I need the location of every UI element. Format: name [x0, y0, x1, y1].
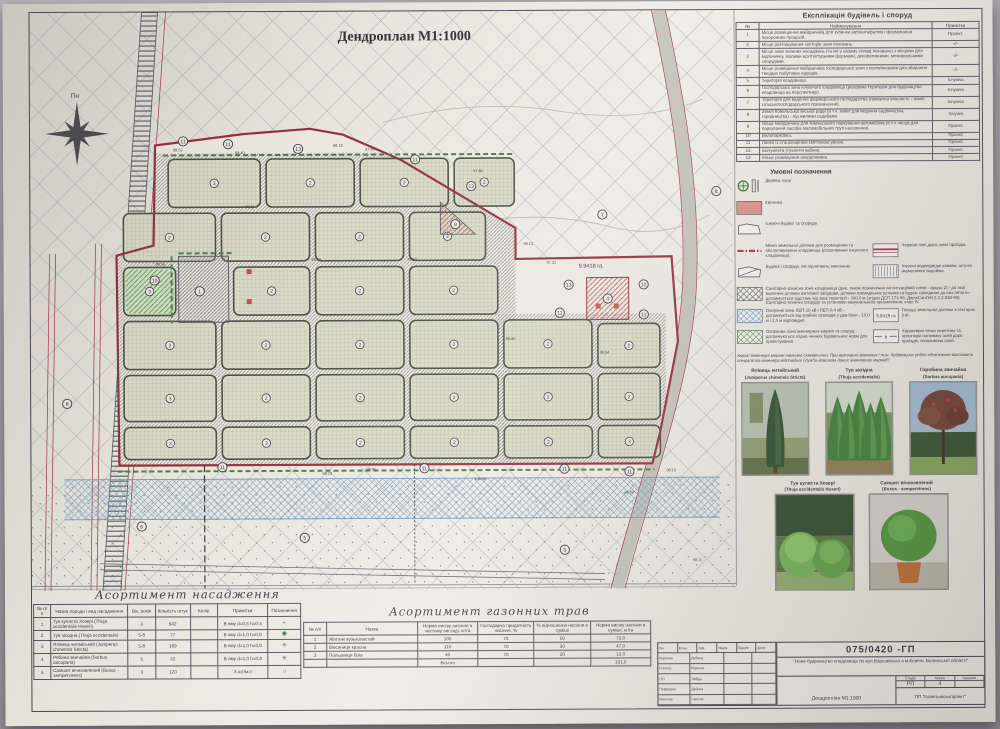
svg-text:2: 2 [264, 235, 267, 241]
cell-qty: 42 [155, 653, 190, 666]
svg-text:2: 2 [547, 395, 550, 401]
plant-latin-name: (Buxus - sempervirens) [869, 487, 945, 492]
legend-item: вХарактерні точки перетину та орієнтири … [873, 329, 981, 348]
stage-table: СтадіяРПАркуш4Аркушів [896, 676, 984, 688]
legend-row: Охоронна зона інженерних мереж та споруд… [737, 329, 981, 349]
legend-item-text: Квітники [765, 200, 782, 205]
plan-marker: 8 [712, 186, 721, 195]
szz-icon [737, 286, 763, 300]
plan-marker: 11 [639, 310, 648, 319]
burial-sector: 2 [266, 159, 354, 207]
rev-header-cell: №док. [717, 643, 737, 653]
cell-age: 3 [128, 617, 155, 630]
column-header: Колір [190, 604, 217, 617]
svg-text:97.31: 97.31 [547, 261, 557, 265]
plant-latin-name: (Thuja occidentalis Hoseri) [775, 487, 851, 492]
plant-card: Туя західна(Thuja occidentalis) [821, 369, 897, 476]
staff-name: Дубина [690, 653, 724, 663]
plant-card: Туя куляста Хозері(Thuja occidentalis Ho… [775, 481, 851, 591]
burial-sector: 2 [124, 321, 216, 369]
legend-item: Охоронна зона інженерних мереж та споруд… [737, 330, 873, 350]
burial-sector: 2 [316, 426, 404, 458]
empty [304, 659, 327, 667]
row-number: 1 [736, 30, 759, 42]
cell-ratio: 20 [534, 650, 590, 658]
staff-name: Дубина [690, 684, 724, 694]
svg-text:2: 2 [483, 180, 486, 186]
cell-color [190, 640, 217, 653]
column-header: % відношення насіння в суміші [534, 621, 590, 634]
rev-header-cell: Підпис [737, 643, 757, 653]
table-row: 3Місце зони зелених насаджень (та які у … [736, 48, 979, 66]
svg-text:2: 2 [169, 343, 172, 349]
svg-text:2: 2 [452, 288, 455, 294]
legend-row: Межа земельної ділянки для розміщення та… [736, 243, 980, 263]
burial-sector: 3 [124, 267, 176, 315]
title-block-staff: Зм.Кільк.Арк.№док.ПідписДатаКерівникДуби… [658, 643, 777, 706]
burial-sector: 2 [222, 375, 310, 421]
staff-row: КерівникДубина [658, 653, 776, 664]
plant-photo [909, 381, 977, 475]
svg-text:13: 13 [295, 147, 301, 153]
plan-marker: 12 [639, 280, 648, 289]
flowerbed-icon [736, 200, 762, 214]
table-total-row: Всього131,0 [304, 658, 651, 668]
legend-item: Межа земельної ділянки для розміщення та… [736, 243, 872, 263]
row-name: Місце розміщення майданчика господарсько… [759, 65, 932, 78]
title-block: Зм.Кільк.Арк.№док.ПідписДатаКерівникДуби… [657, 641, 985, 706]
cell-n: 5 [34, 666, 51, 679]
cell-qty: 120 [155, 666, 190, 679]
legend-item: Існуючі водовідвідні канави, штучні акум… [873, 264, 981, 283]
axis-icon: в [873, 330, 899, 344]
burial-sector: 3 [222, 427, 310, 459]
plan-marker: 13 [467, 181, 476, 190]
legend-item-text: Існуючі будівлі та споруди [765, 222, 817, 227]
svg-text:98.12: 98.12 [408, 257, 418, 261]
staff-name: Сметюк [690, 695, 724, 705]
cell-note: 3 шт/м.п [218, 665, 269, 678]
svg-text:3: 3 [265, 441, 268, 447]
staff-date [752, 663, 776, 673]
boundary-icon [736, 243, 762, 257]
table-row: 7Територія для ведення фермерського госп… [736, 96, 979, 109]
table-row: 9Місце майданчика для тимчасового паркув… [736, 120, 979, 133]
project-name: "Нове будівництво кладовища по вул.Варша… [777, 657, 984, 677]
cell-ratio: 50 [534, 634, 590, 642]
staff-signature [724, 674, 752, 684]
svg-text:97.88: 97.88 [473, 169, 483, 173]
burial-sector: 2 [123, 213, 215, 261]
legend-item: Будівлі і споруди, які підлягають знесен… [737, 264, 873, 284]
svg-text:в: в [885, 335, 888, 341]
svg-text:2: 2 [547, 440, 550, 446]
plant-photo [825, 381, 893, 475]
waste-container [614, 303, 619, 308]
cell-name: Туя західна (Thuja occidentalis) [50, 630, 128, 640]
burial-sector: 2 [316, 374, 404, 420]
site-plan-drawing: 322222223222222222322222332223 [29, 10, 734, 591]
staff-role: ГІП [658, 674, 690, 684]
cell-mix: 12,0 [591, 650, 651, 658]
table-header-row: № п/пНазва породи і вид насадженняВік, р… [34, 603, 301, 617]
table-row: 13Місце розміщення свердловини.Проект. [737, 153, 980, 161]
rev-header-cell: Кільк. [678, 643, 698, 653]
row-number: 8 [736, 109, 759, 121]
column-header: № п/п [34, 604, 51, 617]
grass-section: Асортимент газонних трав № п/пНазваНорма… [303, 603, 655, 668]
row-note: -//- [932, 48, 979, 65]
svg-text:5: 5 [303, 536, 306, 542]
right-panel: Експлікація будівель і споруд №Найменува… [735, 12, 982, 592]
legend-item-text: Межа земельної ділянки для розміщення та… [765, 243, 872, 258]
svg-text:3: 3 [148, 289, 151, 295]
stage-value: 4 [926, 680, 954, 687]
plant-card: Ялівець китайський(Juniperus chinensis S… [737, 369, 813, 476]
cell-note: В яму d=1,0 h=0,8 [217, 639, 268, 652]
svg-text:3: 3 [628, 439, 631, 445]
axis-swatch: в [873, 330, 899, 349]
rev-header-cell: Зм. [658, 643, 678, 653]
legend-item-text: Будівлі і споруди, які підлягають знесен… [766, 265, 852, 270]
cell-quality: 70 [478, 651, 534, 659]
row-name: Місце майданчика для тимчасового паркува… [759, 120, 932, 133]
svg-text:2: 2 [270, 289, 273, 295]
svg-text:98.15: 98.15 [666, 468, 676, 472]
staff-role: Виконав [658, 695, 690, 705]
svg-text:3: 3 [169, 396, 172, 402]
legend-row: Існуючі будівлі та споруди [736, 221, 980, 241]
svg-text:9.9418 га: 9.9418 га [876, 313, 896, 318]
plan-marker: 5 [560, 545, 569, 554]
column-header: Позначення [268, 603, 301, 616]
svg-text:98.84: 98.84 [600, 351, 610, 355]
cell-name: Самшит вічнозелений (Buxus - semperviren… [51, 666, 129, 679]
legend-item: Існуючі будівлі та споруди [736, 221, 872, 241]
plan-marker: 11 [560, 464, 569, 473]
stage-cell: Аркуш4 [926, 676, 955, 687]
legend-item: Квітники [736, 200, 872, 220]
cell-age: 5-8 [128, 630, 155, 640]
legend-item: 9.9418 гаПлоща земельної ділянки в гекта… [873, 308, 981, 327]
cell-quality: 70 [478, 642, 534, 650]
hoseri-photo [776, 495, 854, 590]
cell-mix: 47,0 [591, 642, 651, 650]
burial-sector: 3 [124, 375, 216, 421]
staff-date [752, 694, 776, 704]
svg-text:2: 2 [446, 234, 449, 240]
row-note: Існуюча [932, 96, 979, 108]
burial-sector: 2 [454, 158, 514, 206]
redlines-swatch [872, 243, 898, 262]
svg-text:11: 11 [180, 139, 186, 145]
plant-photo [741, 382, 809, 476]
plan-marker: 7 [598, 210, 607, 219]
svg-text:2: 2 [453, 342, 456, 348]
plant-latin-name: (Thuja occidentalis) [821, 374, 897, 379]
photographed-drawing-sheet: 322222223222222222322222332223 [0, 0, 1000, 729]
cell-color [190, 653, 217, 666]
ditch-swatch [873, 264, 899, 283]
legend-item: Санітарно-захисна зона кладовища (див. т… [737, 286, 981, 307]
building-icon [736, 222, 762, 236]
burial-sector: 2 [598, 373, 660, 419]
plan-marker: 9 [451, 220, 460, 229]
plan-marker: 13 [293, 144, 302, 153]
building-swatch [736, 222, 762, 241]
svg-text:6: 6 [140, 524, 143, 530]
burial-sector: 2 [221, 213, 309, 261]
cell-norm: 40 [417, 651, 477, 659]
cell-mix: 72,0 [590, 634, 650, 642]
column-header: Назва породи і вид насадження [50, 604, 128, 617]
row-number: 9 [736, 121, 759, 133]
cell-color [190, 666, 217, 679]
total-label: Всього [417, 659, 477, 667]
cell-n: 3 [34, 640, 51, 653]
svg-text:2: 2 [358, 234, 361, 240]
svg-text:2: 2 [359, 440, 362, 446]
column-header: Кількість штук [155, 604, 190, 617]
staff-signature [724, 695, 752, 705]
ditch-icon [873, 264, 899, 278]
legend: Умовні позначення Дерева, кущіКвітникиІс… [736, 168, 981, 363]
paper-sheet: 322222223222222222322222332223 [2, 0, 995, 726]
svg-text:2: 2 [547, 342, 550, 348]
svg-text:2: 2 [453, 440, 456, 446]
svg-text:9: 9 [454, 222, 457, 228]
legend-row: Будівлі і споруди, які підлягають знесен… [737, 264, 981, 284]
burial-sector: 2 [410, 320, 498, 368]
rev-header-cell: Арк. [698, 643, 718, 653]
row-number: 3 [736, 49, 759, 66]
row-number: 6 [736, 85, 759, 97]
thuja-photo [826, 382, 892, 474]
plan-marker: 10 [150, 276, 159, 285]
plan-marker: 11 [178, 137, 187, 146]
svg-text:13: 13 [566, 283, 572, 289]
svg-text:13: 13 [468, 184, 474, 190]
cell-n: 4 [34, 653, 51, 666]
legend-note: Увага! Інженерні мережі нанесені схемати… [737, 352, 981, 363]
legend-item: Червоні лінії доріг, межі проїздів. [872, 243, 980, 262]
buxus-photo [870, 495, 948, 590]
plan-marker: 8 [63, 399, 72, 408]
staff-name: Лебідь [690, 674, 724, 684]
svg-text:98.56: 98.56 [625, 490, 635, 494]
burial-sector: 2 [504, 320, 592, 368]
plan-marker: 11 [555, 308, 564, 317]
legend-row: Санітарно-захисна зона кладовища (див. т… [737, 286, 981, 307]
legend-row: Охоронні зони ЛЕП-10 кВ і ЛЕП-0,4 кВ - д… [737, 308, 981, 328]
staff-name: Коренга [690, 664, 724, 674]
burial-sector: 2 [598, 323, 660, 367]
waste-container [596, 304, 601, 309]
column-header: Норма висіву насіння в суміші, кг/га [590, 621, 650, 634]
svg-text:98.11: 98.11 [693, 558, 702, 562]
row-name: Господарська зона існуючого кладовища (р… [759, 84, 932, 97]
legend-item-text: Червоні лінії доріг, межі проїздів. [901, 243, 966, 248]
burial-sector: 2 [316, 266, 404, 314]
demolish-icon [737, 265, 763, 279]
row-note: Проект. [933, 153, 980, 160]
cell-name: Рябина звичайна (Sorbus aucuparia) [51, 653, 129, 666]
svg-text:2: 2 [359, 395, 362, 401]
svg-text:3: 3 [213, 181, 216, 187]
legend-item-text: Охоронні зони ЛЕП-10 кВ і ЛЕП-0,4 кВ - д… [766, 308, 873, 323]
staff-row: Н.контр.Коренга [658, 663, 776, 674]
plant-photo [775, 494, 855, 591]
grass-table: № п/пНазваНорма висіву насіння в чистому… [303, 620, 651, 668]
svg-text:11: 11 [627, 469, 633, 475]
staff-role: Перевірив [658, 684, 690, 694]
table-row: 1Туя куляста Хозері (Thuja occidentalis … [34, 616, 301, 630]
row-number: 7 [736, 97, 759, 109]
svg-text:2: 2 [359, 342, 362, 348]
plant-latin-name: (Juniperus chinensis Stricta) [737, 375, 813, 380]
svg-text:98.34: 98.34 [312, 258, 322, 262]
svg-text:98.56: 98.56 [156, 262, 166, 266]
plant-assortment-photos: Ялівець китайський(Juniperus chinensis S… [737, 368, 982, 591]
plan-marker: 11 [218, 463, 227, 472]
table-row: 4Рябина звичайна (Sorbus aucuparia)542В … [34, 652, 301, 666]
legend-title: Умовні позначення [770, 168, 980, 176]
svg-text:8: 8 [715, 189, 718, 195]
row-name: Землі Ковельської міської ради (в т.ч. з… [759, 108, 932, 121]
star-red-symbol: ✳ [268, 652, 301, 665]
burial-sector: 2 [316, 320, 404, 368]
column-header: Норма висіву насіння в чистому вигляді, … [417, 622, 477, 635]
row-note: Проект. [932, 120, 979, 132]
table-row: 6Господарська зона існуючого кладовища (… [736, 84, 979, 97]
svg-text:11: 11 [422, 466, 428, 472]
burial-sector: 3 [124, 427, 216, 459]
legend-row: Дерева, кущі [736, 178, 980, 198]
svg-text:11: 11 [641, 312, 647, 318]
svg-text:Пн: Пн [71, 93, 80, 100]
flowerbed [247, 269, 252, 274]
svg-text:98.23: 98.23 [322, 472, 332, 476]
stage-value [955, 680, 983, 681]
staff-row: ВиконавСметюк [658, 694, 776, 705]
total-value: 131,0 [591, 658, 651, 666]
column-header: Господарча придатність насіння, % [478, 621, 534, 634]
legend-item-text: Площа земельної ділянки в гектарах (га). [902, 308, 981, 318]
row-name: Місце зони зелених насаджень (та які у с… [759, 48, 932, 66]
svg-text:1: 1 [198, 289, 201, 295]
circle-green-symbol: ◉ [268, 630, 301, 640]
svg-text:7: 7 [601, 212, 604, 218]
trees-swatch [736, 179, 762, 198]
legend-item: Охоронні зони ЛЕП-10 кВ і ЛЕП-0,4 кВ - д… [737, 308, 873, 328]
svg-text:11: 11 [220, 465, 226, 471]
empty [327, 659, 418, 667]
plan-marker: 4 [603, 294, 612, 303]
table-row: 8Землі Ковельської міської ради (в т.ч. … [736, 108, 979, 121]
row-number: 13 [737, 154, 760, 161]
cell-quality: 70 [478, 634, 534, 642]
demolish-swatch [737, 265, 763, 284]
svg-text:2: 2 [358, 288, 361, 294]
row-name: Територія для ведення фермерського госпо… [759, 96, 932, 109]
svg-text:11: 11 [412, 157, 418, 163]
staff-signature [724, 664, 752, 674]
cell-color [190, 617, 217, 630]
column-header: Примітки [217, 604, 268, 617]
burial-sector: 2 [315, 212, 403, 260]
star-green-symbol: ✳ [268, 639, 301, 652]
plan-marker: 11 [223, 140, 232, 149]
svg-text:2: 2 [309, 181, 312, 187]
burial-sector: 2 [410, 266, 498, 314]
row-note: Існуюча [932, 84, 979, 96]
cell-color [190, 630, 217, 640]
szz-swatch [737, 286, 763, 305]
row-number: 4 [736, 66, 759, 78]
legend-item-text: Характерні точки перетину та орієнтири н… [902, 329, 981, 344]
company-name: ПП "Ковельміськпроект" [896, 688, 984, 704]
column-header: Вік, років [128, 604, 155, 617]
cell-n: 3 [304, 651, 327, 659]
staff-row: ПеревіривДубина [658, 684, 776, 695]
plant-photo [869, 494, 949, 591]
trees-icon [736, 179, 762, 193]
table-row: 1Місце розміщення майданчика для зупинки… [736, 29, 979, 42]
grass-title: Асортимент газонних трав [389, 603, 655, 618]
staff-date [752, 684, 776, 694]
svg-text:100.08: 100.08 [474, 477, 486, 481]
rowan-photo [910, 382, 976, 474]
cell-n: 2 [34, 631, 51, 641]
explication-title: Експлікація будівель і споруд [735, 12, 979, 20]
row-name: Місце розміщення майданчика для зупинки … [759, 29, 932, 42]
explication-table: №НайменуванняПримітки1Місце розміщення м… [736, 21, 981, 162]
plan-marker: 6 [137, 522, 146, 531]
burial-sector: 2 [410, 426, 498, 458]
svg-text:12: 12 [641, 282, 647, 288]
column-header: № п/п [304, 622, 327, 635]
area-swatch: 9.9418 га [873, 308, 899, 327]
svg-text:3: 3 [169, 441, 172, 447]
svg-text:2: 2 [265, 343, 268, 349]
svg-text:2: 2 [403, 180, 406, 186]
cell-note: В яму d=1,0 h=0,8 [217, 630, 268, 640]
burial-sector: 3 [598, 425, 660, 457]
burial-sector: 2 [410, 374, 498, 420]
legend-item: Дерева, кущі [736, 178, 872, 198]
plan-marker: 13 [564, 280, 573, 289]
lep-swatch [737, 309, 763, 328]
svg-text:11: 11 [562, 467, 568, 473]
plan-title: Дендроплан М1:1000 [338, 29, 471, 45]
revision-header-row: Зм.Кільк.Арк.№док.ПідписДата [658, 643, 776, 654]
staff-date [752, 674, 776, 684]
table-row: 5Самшит вічнозелений (Buxus - sempervire… [34, 665, 301, 679]
cell-age: 3 [128, 666, 155, 679]
lep-icon [737, 309, 763, 323]
burial-sector: 2 [504, 374, 592, 420]
legend-item-text: Дерева, кущі [765, 179, 791, 184]
network-swatch [737, 330, 763, 349]
burial-sector: 2 [222, 321, 310, 369]
protection-band [65, 477, 720, 520]
row-note: -//- [932, 65, 979, 77]
burial-sector: 3 [168, 159, 260, 207]
svg-text:98.86: 98.86 [506, 337, 516, 341]
document-code: 075/0420 -ГП [777, 642, 984, 658]
burial-sector: 2 [504, 426, 592, 458]
plan-marker: 5 [300, 533, 309, 542]
